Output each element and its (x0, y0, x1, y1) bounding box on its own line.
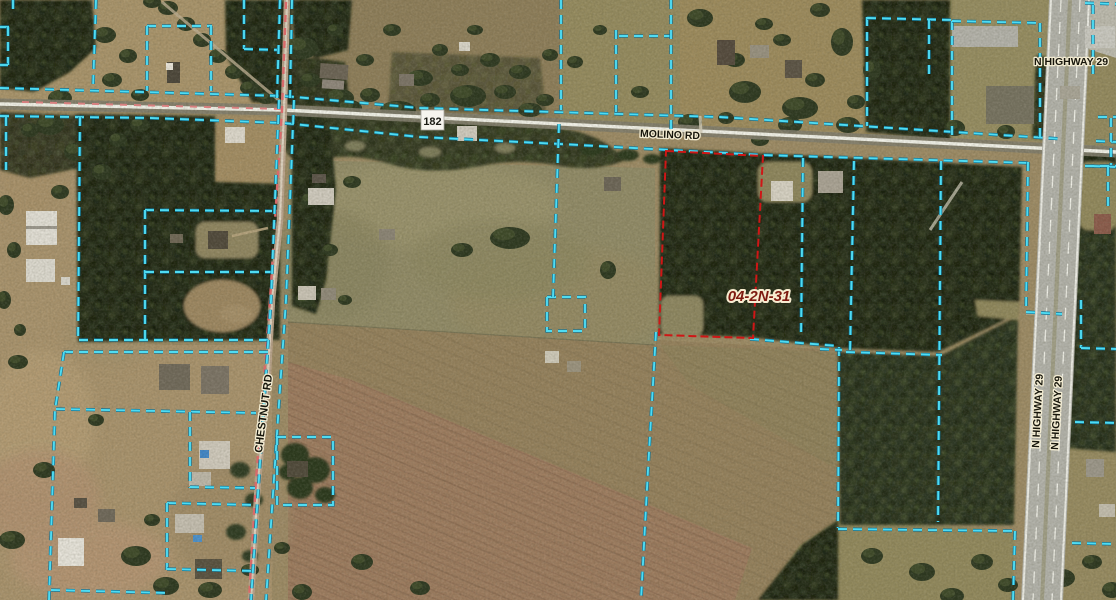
svg-text:MOLINO RD: MOLINO RD (640, 128, 701, 142)
svg-text:182: 182 (423, 116, 441, 128)
svg-text:04-2N-31: 04-2N-31 (728, 288, 791, 305)
svg-text:N HIGHWAY 29: N HIGHWAY 29 (1034, 56, 1108, 68)
